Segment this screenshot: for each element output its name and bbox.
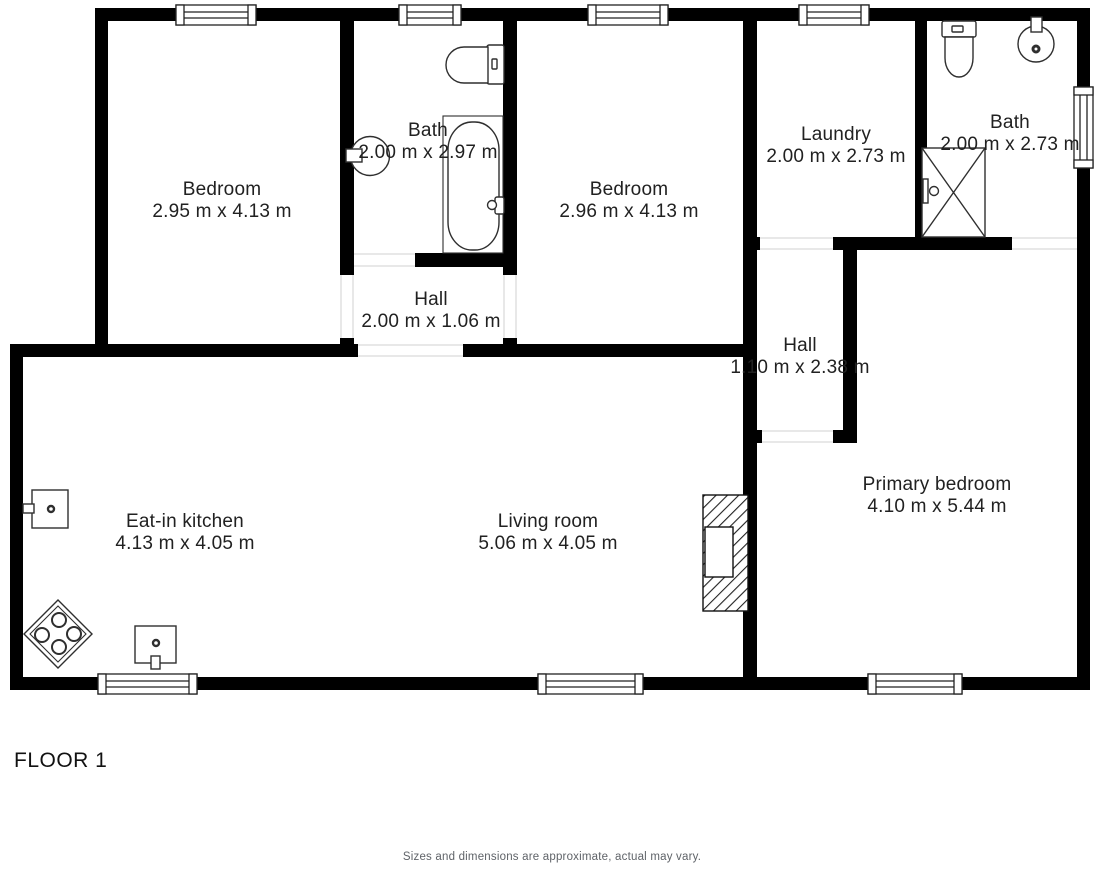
dishwasher-fixture bbox=[135, 626, 176, 669]
room-dimensions: 2.95 m x 4.13 m bbox=[152, 201, 291, 223]
wall-bath2-bottom bbox=[833, 237, 1012, 250]
room-name: Bedroom bbox=[152, 179, 291, 201]
room-label-living: Living room 5.06 m x 4.05 m bbox=[478, 511, 617, 555]
wall-hall2-bottom-right-stub bbox=[833, 430, 857, 443]
window-living bbox=[538, 674, 643, 694]
room-name: Primary bedroom bbox=[863, 474, 1012, 496]
wall-midline-right bbox=[463, 344, 757, 357]
room-label-bath1: Bath 2.00 m x 2.97 m bbox=[358, 120, 497, 164]
wall-bath-bedroom2 bbox=[503, 8, 517, 275]
window-bedroom1 bbox=[176, 5, 256, 25]
room-dimensions: 2.00 m x 2.73 m bbox=[940, 134, 1079, 156]
window-bath1 bbox=[399, 5, 461, 25]
room-name: Bath bbox=[358, 120, 497, 142]
door-opening-bath1 bbox=[354, 254, 415, 266]
room-label-laundry: Laundry 2.00 m x 2.73 m bbox=[766, 124, 905, 168]
door-opening-bath2 bbox=[1012, 238, 1077, 249]
room-label-kitchen: Eat-in kitchen 4.13 m x 4.05 m bbox=[115, 511, 254, 555]
door-opening-hall2-primary bbox=[762, 431, 833, 442]
toilet-fixture-bath1 bbox=[446, 45, 504, 84]
room-name: Laundry bbox=[766, 124, 905, 146]
floor-label: FLOOR 1 bbox=[14, 749, 107, 773]
room-name: Bedroom bbox=[559, 179, 698, 201]
wall-bedroom1-bath bbox=[340, 8, 354, 275]
room-dimensions: 1.10 m x 2.38 m bbox=[730, 357, 869, 379]
floor-plan-drawing bbox=[0, 0, 1104, 700]
room-label-bedroom2: Bedroom 2.96 m x 4.13 m bbox=[559, 179, 698, 223]
room-dimensions: 2.96 m x 4.13 m bbox=[559, 201, 698, 223]
wall-hall2-bottom-left-stub bbox=[743, 430, 762, 443]
wall-exterior-left-upper bbox=[95, 8, 108, 357]
room-name: Bath bbox=[940, 112, 1079, 134]
room-dimensions: 4.10 m x 5.44 m bbox=[863, 496, 1012, 518]
room-dimensions: 4.13 m x 4.05 m bbox=[115, 533, 254, 555]
room-name: Eat-in kitchen bbox=[115, 511, 254, 533]
window-laundry bbox=[799, 5, 869, 25]
door-opening-laundry bbox=[760, 238, 833, 249]
wall-midline-left bbox=[10, 344, 358, 357]
room-dimensions: 2.00 m x 2.97 m bbox=[358, 142, 497, 164]
room-dimensions: 2.00 m x 2.73 m bbox=[766, 146, 905, 168]
room-label-hall2: Hall 1.10 m x 2.38 m bbox=[730, 335, 869, 379]
fireplace-fixture bbox=[703, 495, 748, 611]
room-label-primary: Primary bedroom 4.10 m x 5.44 m bbox=[863, 474, 1012, 518]
room-name: Living room bbox=[478, 511, 617, 533]
room-label-bath2: Bath 2.00 m x 2.73 m bbox=[940, 112, 1079, 156]
door-openings bbox=[341, 238, 1077, 442]
fixtures bbox=[23, 17, 1054, 669]
room-name: Hall bbox=[730, 335, 869, 357]
floor-plan: Bedroom 2.95 m x 4.13 m Bath 2.00 m x 2.… bbox=[0, 0, 1104, 700]
window-bedroom2 bbox=[588, 5, 668, 25]
sink-fixture-bath2 bbox=[1018, 17, 1054, 62]
shower-fixture bbox=[922, 148, 985, 237]
room-name: Hall bbox=[361, 289, 500, 311]
door-opening-bedroom2 bbox=[504, 275, 516, 338]
room-label-bedroom1: Bedroom 2.95 m x 4.13 m bbox=[152, 179, 291, 223]
window-primary bbox=[868, 674, 962, 694]
window-kitchen bbox=[98, 674, 197, 694]
toilet-fixture-bath2 bbox=[942, 21, 976, 77]
oven-fixture bbox=[23, 490, 68, 528]
stove-fixture bbox=[24, 600, 92, 668]
room-dimensions: 2.00 m x 1.06 m bbox=[361, 311, 500, 333]
walls bbox=[10, 8, 1090, 690]
wall-laundry-bottom-stub bbox=[743, 237, 760, 250]
wall-bath1-bottom bbox=[415, 253, 517, 267]
room-dimensions: 5.06 m x 4.05 m bbox=[478, 533, 617, 555]
room-label-hall1: Hall 2.00 m x 1.06 m bbox=[361, 289, 500, 333]
disclaimer-text: Sizes and dimensions are approximate, ac… bbox=[403, 851, 701, 863]
door-opening-hall1-living bbox=[358, 345, 463, 356]
door-opening-bedroom1 bbox=[341, 275, 353, 338]
wall-exterior-left-lower bbox=[10, 344, 23, 690]
